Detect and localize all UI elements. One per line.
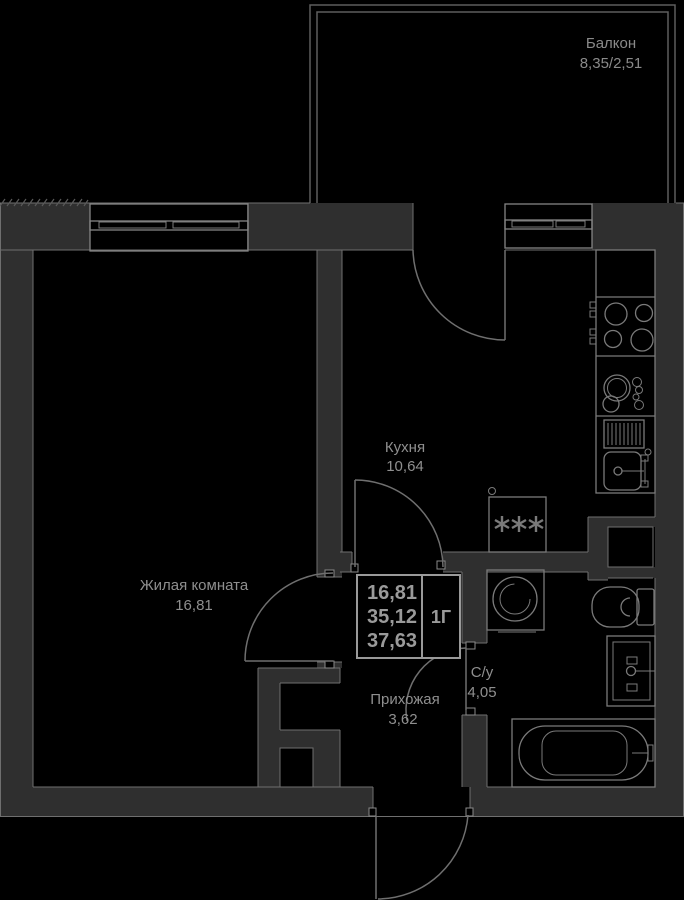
washing-machine-icon (487, 570, 544, 632)
info-box: 16,81 35,12 37,63 1Г (357, 575, 460, 658)
living-room-door-icon (245, 573, 333, 661)
door-jamb (466, 708, 475, 715)
living-room-window-icon (90, 204, 248, 251)
wall-segment (258, 683, 280, 787)
vent-shaft-small (280, 748, 313, 787)
kitchen-door-icon (355, 480, 443, 567)
floor-plan: Балкон 8,35/2,51 Кухня 10,64 Жилая комна… (0, 0, 684, 900)
wall-segment (608, 517, 655, 527)
wall-segment (258, 668, 340, 683)
door-jamb (325, 661, 334, 668)
bathroom-label: С/у (471, 664, 494, 681)
kitchen-area: 10,64 (386, 458, 424, 475)
wall-segment (443, 552, 588, 572)
wall-segment (0, 250, 33, 817)
wall-segment (280, 730, 340, 748)
door-jamb (466, 642, 475, 649)
hallway-area: 3,62 (388, 711, 417, 728)
unit-type-label: 1Г (431, 607, 451, 627)
drying-rack-icon (604, 420, 644, 448)
wall-face-lines (0, 203, 684, 817)
kitchen-fixtures (489, 250, 656, 552)
entrance-door-icon (376, 815, 468, 899)
door-jamb (466, 808, 473, 816)
door-jamb (437, 561, 445, 569)
wall-segment (340, 552, 352, 572)
info-value-2: 35,12 (367, 606, 417, 628)
floor-plan-svg: Балкон 8,35/2,51 Кухня 10,64 Жилая комна… (0, 0, 684, 900)
kitchen-window-icon (505, 204, 592, 248)
bathroom-sink-icon (607, 636, 655, 706)
balcony-door-icon (413, 250, 505, 340)
stove-icon (590, 302, 653, 351)
bathroom-fixtures (487, 570, 655, 787)
living-room-area: 16,81 (175, 597, 213, 614)
info-value-3: 37,63 (367, 630, 417, 652)
wall-segment (588, 517, 608, 580)
door-jamb (369, 808, 376, 816)
walls (0, 199, 684, 817)
wall-segment (247, 203, 413, 250)
info-value-1: 16,81 (367, 582, 417, 604)
bathroom-area: 4,05 (467, 684, 496, 701)
wall-segment (462, 715, 487, 787)
kitchen-label: Кухня (385, 439, 425, 456)
kitchen-sink-icon (604, 449, 651, 490)
wall-segment (470, 787, 684, 817)
double-sink-icon (603, 375, 644, 412)
wall-segment (462, 572, 487, 643)
vent-shaft (608, 527, 653, 567)
hallway-label: Прихожая (370, 691, 440, 708)
balcony-area: 8,35/2,51 (580, 55, 643, 72)
wall-segment (592, 203, 684, 250)
fridge-icon (489, 488, 547, 553)
wall-segment (608, 567, 655, 578)
wall-segment (0, 203, 90, 250)
living-room-label: Жилая комната (140, 577, 249, 594)
toilet-icon (592, 587, 654, 627)
wall-segment (313, 748, 340, 787)
wall-segment (317, 250, 342, 577)
wall-segment (0, 787, 373, 817)
bathtub-icon (512, 719, 655, 787)
balcony-label: Балкон (586, 35, 636, 52)
wall-segment (655, 250, 684, 817)
